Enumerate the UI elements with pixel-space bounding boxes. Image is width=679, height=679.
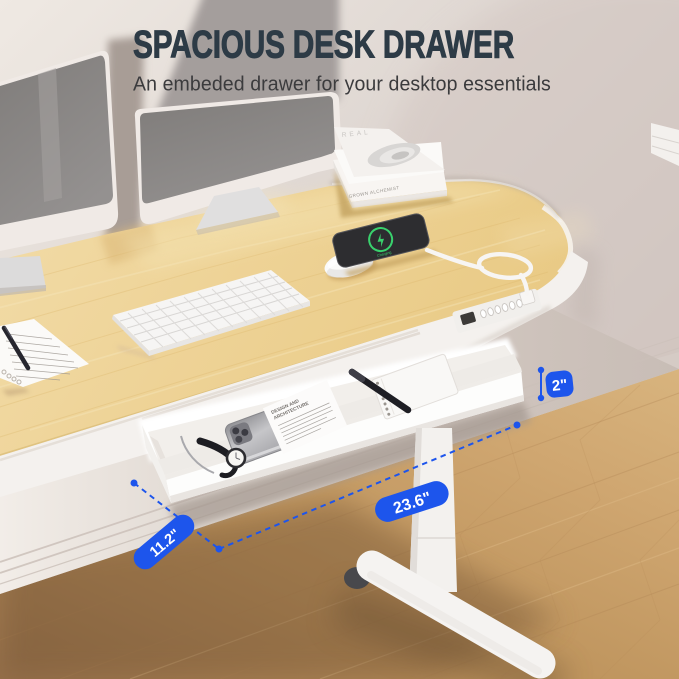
svg-text:2": 2": [551, 376, 568, 395]
svg-text:An embeded drawer for your des: An embeded drawer for your desktop essen…: [133, 73, 551, 95]
svg-text:SPACIOUS DESK DRAWER: SPACIOUS DESK DRAWER: [133, 24, 514, 66]
